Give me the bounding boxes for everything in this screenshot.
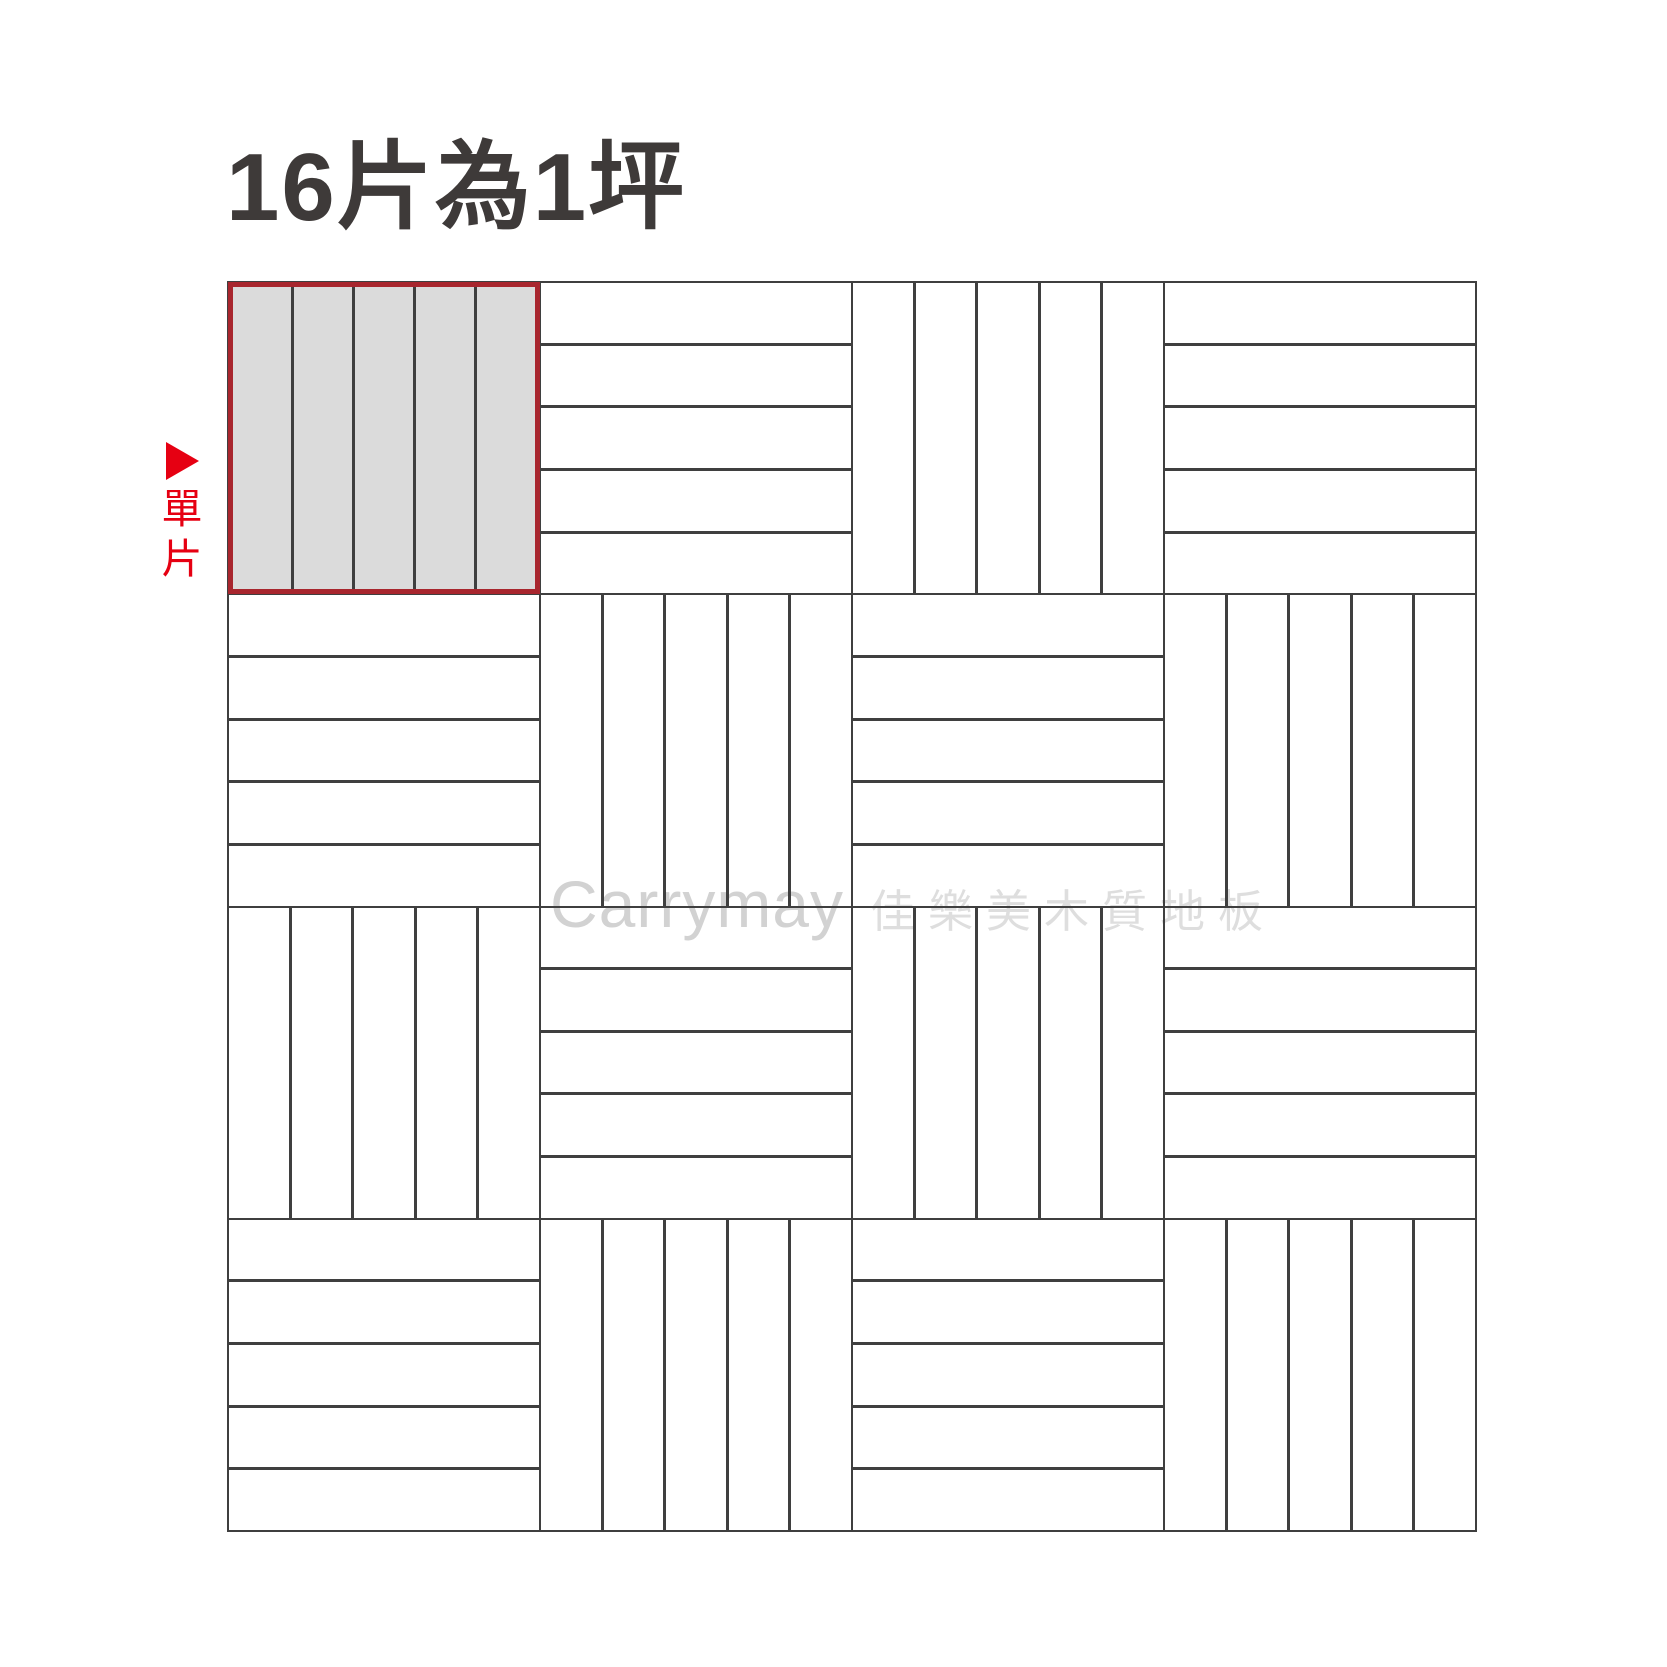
plank-strip [666, 1220, 729, 1530]
plank-strip [1415, 595, 1475, 905]
plank-strip [1415, 1220, 1475, 1530]
plank-strip [666, 595, 729, 905]
plank-strip [1290, 595, 1353, 905]
plank-strip [229, 846, 539, 906]
plank-strip [853, 283, 916, 593]
plank-strip [853, 1345, 1163, 1408]
plank-strip [477, 287, 535, 589]
plank-strip [541, 1220, 604, 1530]
plank-strip [604, 595, 667, 905]
single-piece-arrow-icon [166, 442, 199, 480]
plank-strip [916, 908, 979, 1218]
plank-strip [916, 283, 979, 593]
plank-strip [229, 1220, 539, 1283]
page-title: 16片為1坪 [226, 140, 686, 236]
plank-strip [853, 1470, 1163, 1530]
plank-strip [417, 908, 480, 1218]
plank-strip [229, 721, 539, 784]
tile-r2-c3 [852, 594, 1164, 906]
plank-strip [229, 908, 292, 1218]
plank-strip [355, 287, 416, 589]
plank-strip [1165, 908, 1475, 971]
plank-strip [541, 283, 851, 346]
single-piece-label: 單片 [157, 487, 198, 587]
plank-strip [1103, 283, 1163, 593]
plank-strip [978, 283, 1041, 593]
plank-strip [978, 908, 1041, 1218]
tile-r1-c2 [540, 282, 852, 594]
plank-strip [541, 471, 851, 534]
plank-strip [229, 1408, 539, 1471]
plank-strip [229, 783, 539, 846]
plank-strip [853, 908, 916, 1218]
plank-strip [1165, 534, 1475, 594]
plank-strip [604, 1220, 667, 1530]
plank-strip [541, 1158, 851, 1218]
plank-strip [1165, 1220, 1228, 1530]
plank-strip [1290, 1220, 1353, 1530]
plank-strip [853, 721, 1163, 784]
tile-r2-c2 [540, 594, 852, 906]
plank-strip [729, 595, 792, 905]
plank-strip [1165, 970, 1475, 1033]
tile-r3-c3 [852, 907, 1164, 1219]
plank-strip [1165, 595, 1228, 905]
plank-strip [853, 1220, 1163, 1283]
plank-strip [1103, 908, 1163, 1218]
plank-strip [853, 783, 1163, 846]
plank-strip [1165, 1095, 1475, 1158]
plank-strip [1165, 1033, 1475, 1096]
plank-strip [1041, 283, 1104, 593]
plank-strip [1353, 1220, 1416, 1530]
plank-strip [541, 1095, 851, 1158]
plank-strip [853, 1408, 1163, 1471]
plank-strip [791, 1220, 851, 1530]
tile-r1-c4 [1164, 282, 1476, 594]
plank-strip [541, 346, 851, 409]
tile-r4-c4 [1164, 1219, 1476, 1531]
plank-strip [853, 658, 1163, 721]
tile-r3-c1 [228, 907, 540, 1219]
plank-strip [853, 846, 1163, 906]
tile-r1-c3 [852, 282, 1164, 594]
tile-r2-c4 [1164, 594, 1476, 906]
plank-strip [541, 534, 851, 594]
tile-grid [227, 281, 1477, 1532]
plank-strip [541, 408, 851, 471]
tile-r4-c2 [540, 1219, 852, 1531]
plank-strip [541, 908, 851, 971]
tile-r2-c1 [228, 594, 540, 906]
plank-strip [229, 595, 539, 658]
plank-strip [416, 287, 477, 589]
plank-strip [853, 595, 1163, 658]
tile-r1-c1-highlighted [228, 282, 540, 594]
plank-strip [541, 595, 604, 905]
plank-strip [229, 1345, 539, 1408]
tile-r3-c4 [1164, 907, 1476, 1219]
tile-r4-c1 [228, 1219, 540, 1531]
plank-strip [1228, 595, 1291, 905]
plank-strip [229, 658, 539, 721]
plank-strip [294, 287, 355, 589]
plank-strip [229, 1470, 539, 1530]
plank-strip [853, 1282, 1163, 1345]
plank-strip [1165, 408, 1475, 471]
plank-strip [729, 1220, 792, 1530]
plank-strip [233, 287, 294, 589]
plank-strip [479, 908, 539, 1218]
plank-strip [541, 970, 851, 1033]
plank-strip [541, 1033, 851, 1096]
plank-strip [791, 595, 851, 905]
plank-strip [354, 908, 417, 1218]
plank-strip [1041, 908, 1104, 1218]
plank-strip [1165, 1158, 1475, 1218]
plank-strip [1165, 283, 1475, 346]
plank-strip [229, 1282, 539, 1345]
plank-strip [292, 908, 355, 1218]
tile-r3-c2 [540, 907, 852, 1219]
diagram-canvas: 16片為1坪 Carrymay 佳樂美木質地板 單片 [0, 0, 1667, 1667]
plank-strip [1165, 346, 1475, 409]
plank-strip [1228, 1220, 1291, 1530]
plank-strip [1165, 471, 1475, 534]
plank-strip [1353, 595, 1416, 905]
tile-r4-c3 [852, 1219, 1164, 1531]
